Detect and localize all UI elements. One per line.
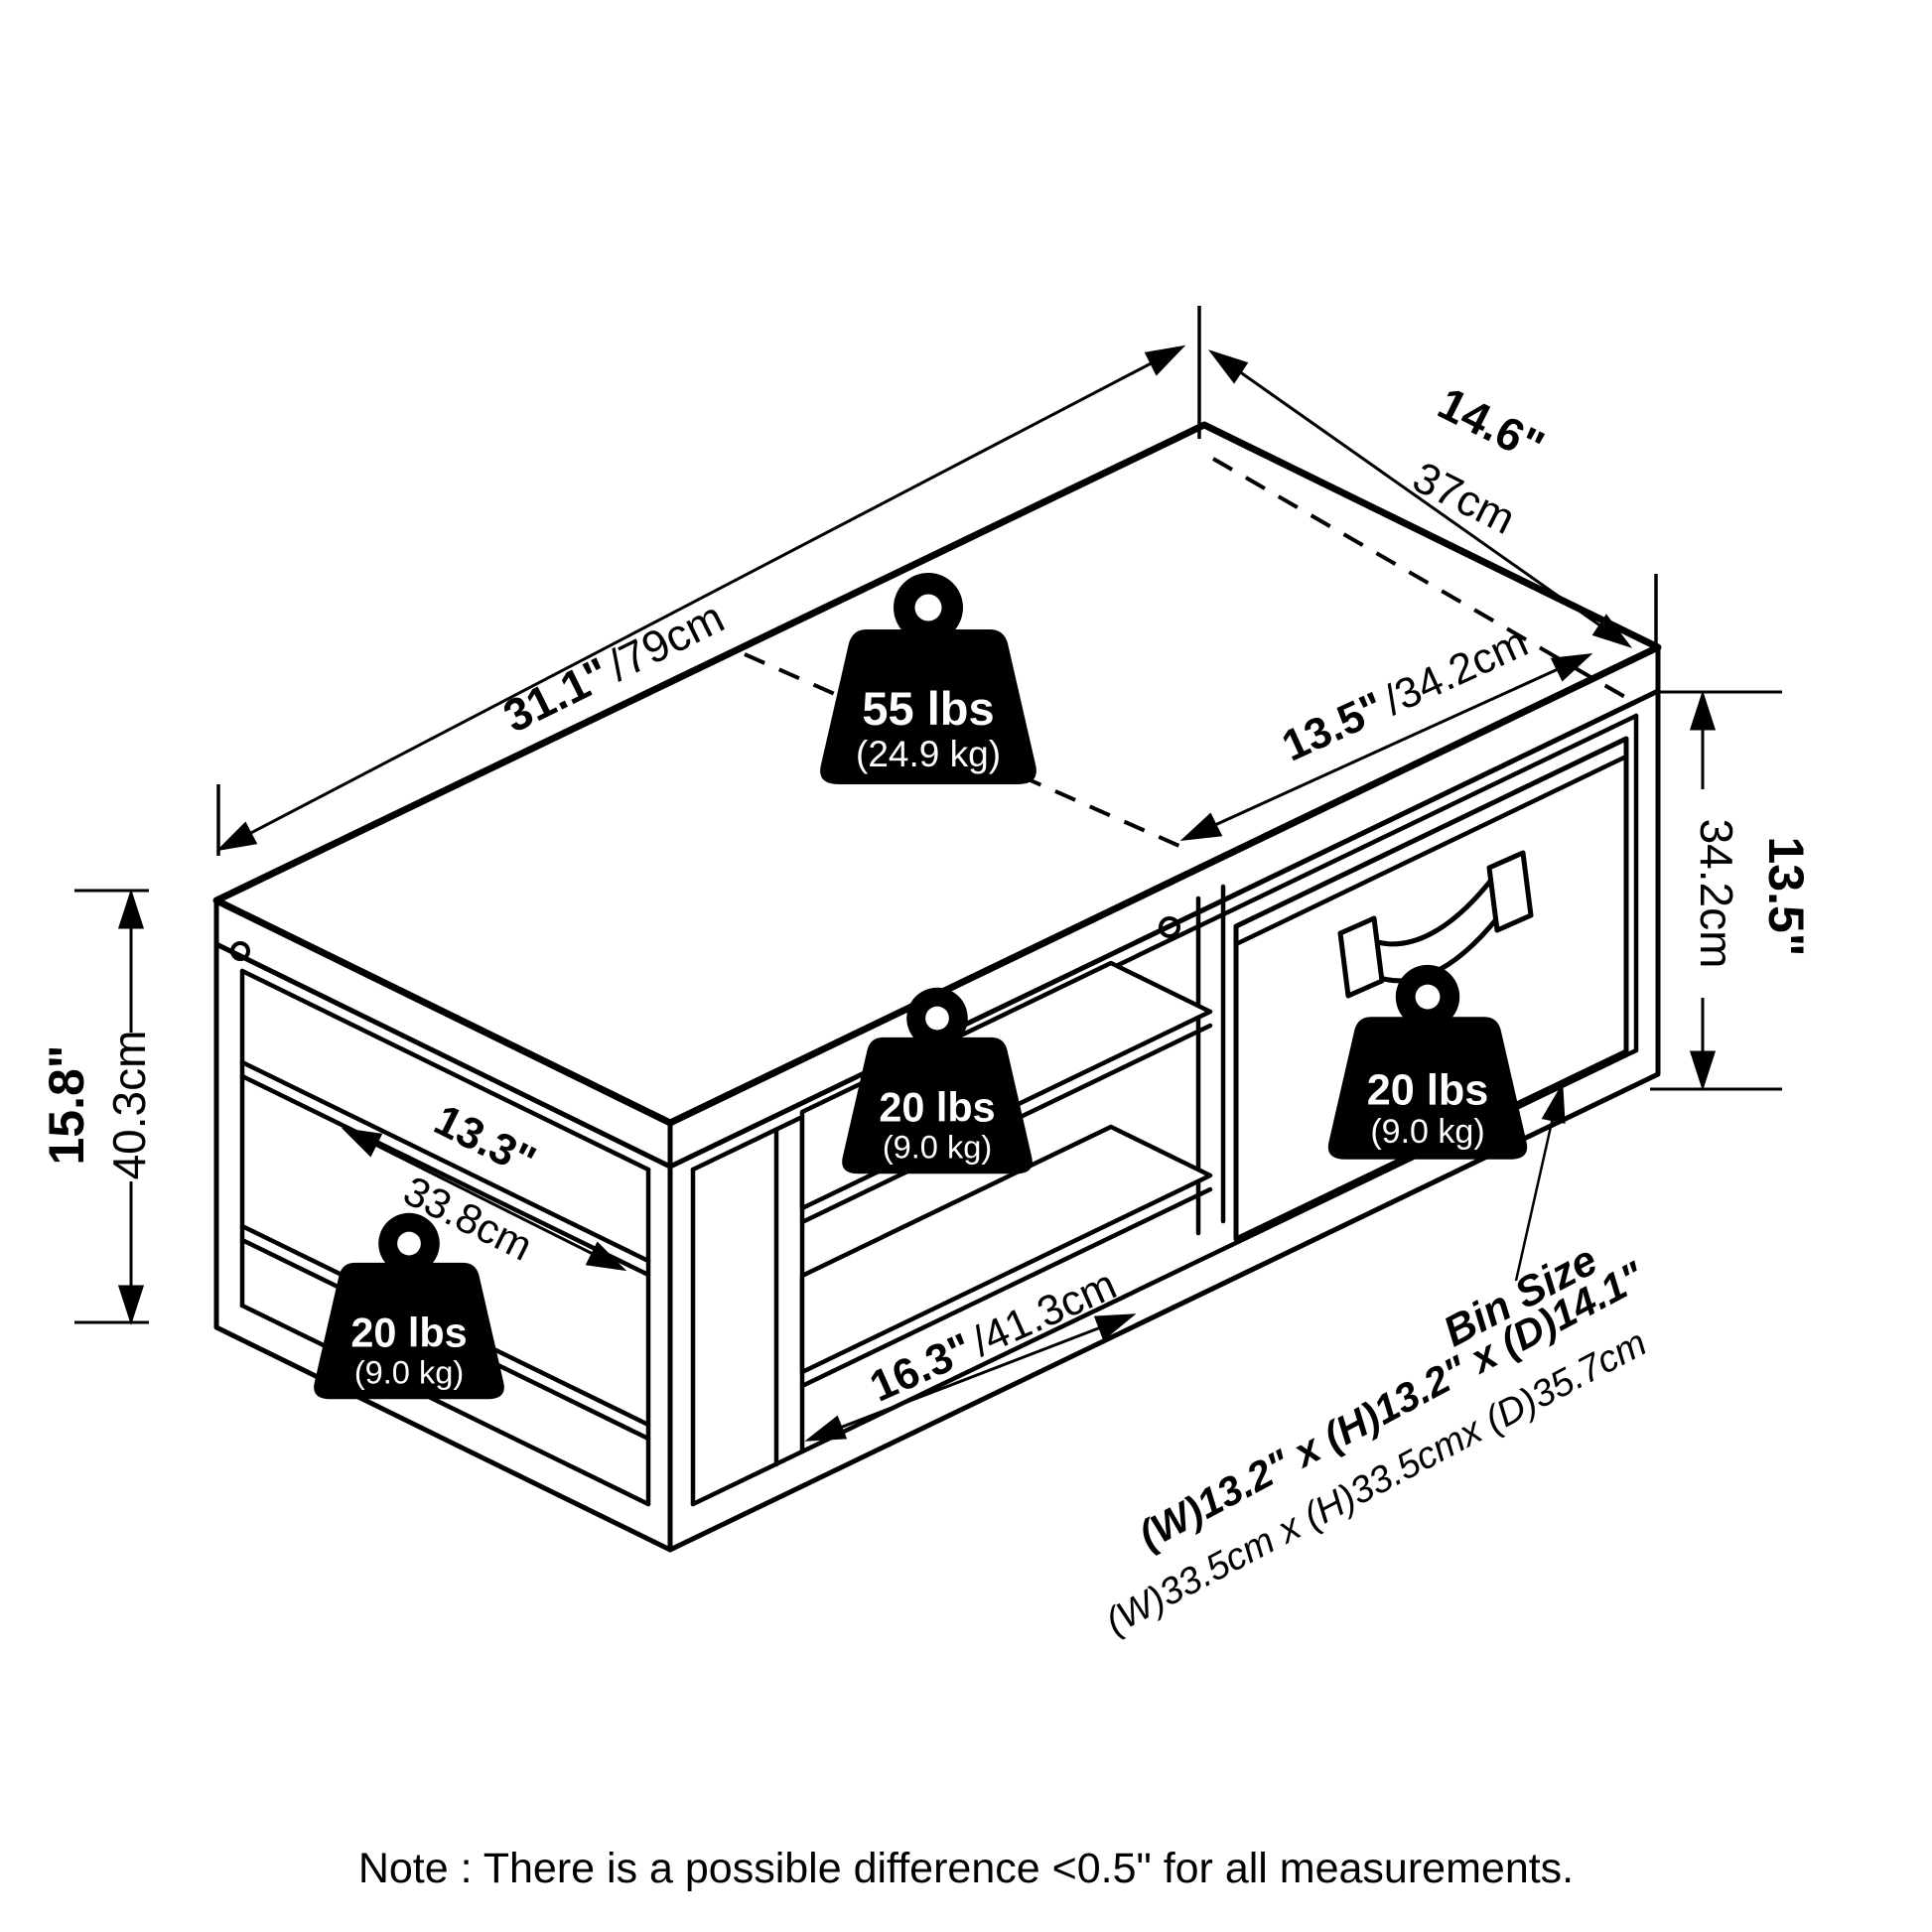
weight-top-lbs: 55 lbs: [862, 682, 994, 735]
bin-size-cm: (W)33.5cm x (H)33.5cmx (D)35.7cm: [1099, 1322, 1653, 1644]
label-depth: 14.6" 37cm: [1405, 377, 1552, 544]
weight-side-kg: (9.0 kg): [354, 1354, 464, 1390]
furniture-diagram: 55 lbs (24.9 kg) 20 lbs (9.0 kg) 20 lbs …: [0, 0, 1932, 1932]
label-total-height: 15.8" 40.3cm: [39, 1031, 155, 1180]
diagram-page: 55 lbs (24.9 kg) 20 lbs (9.0 kg) 20 lbs …: [0, 0, 1932, 1932]
label-bin-height-cm: 34.2cm: [1691, 819, 1742, 969]
weight-middle-kg: (9.0 kg): [883, 1129, 992, 1165]
label-bin-height: 34.2cm 13.5": [1691, 819, 1814, 969]
weight-top-kg: (24.9 kg): [856, 734, 1001, 774]
weight-bin-lbs: 20 lbs: [1367, 1067, 1489, 1115]
bin-size-inches: (W)13.2" x (H)13.2" x (D)14.1": [1132, 1253, 1652, 1559]
weight-bin-kg: (9.0 kg): [1370, 1113, 1484, 1151]
label-height-in: 15.8": [39, 1044, 94, 1165]
label-bin-height-in: 13.5": [1758, 836, 1814, 956]
note-text: Note : There is a possible difference <0…: [358, 1845, 1574, 1892]
label-depth-in: 14.6": [1431, 377, 1553, 473]
weight-side-lbs: 20 lbs: [350, 1310, 467, 1355]
label-height-cm: 40.3cm: [103, 1031, 155, 1180]
weight-middle-lbs: 20 lbs: [879, 1084, 995, 1130]
